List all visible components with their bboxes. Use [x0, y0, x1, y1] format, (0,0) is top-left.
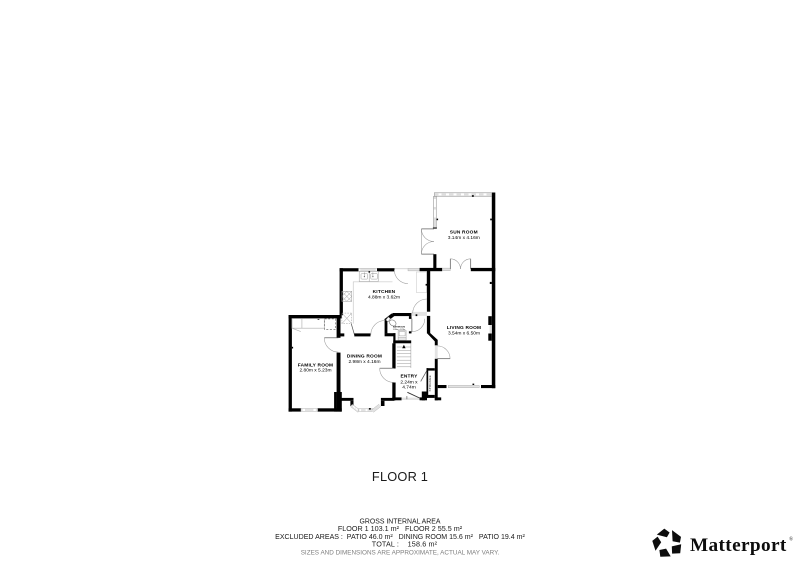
svg-text:BATHROOM: BATHROOM — [393, 325, 405, 328]
svg-text:KITCHEN: KITCHEN — [373, 289, 396, 295]
svg-text:LIVING ROOM: LIVING ROOM — [447, 325, 481, 331]
svg-text:TOTAL : 158.6 m²: TOTAL : 158.6 m² — [372, 539, 438, 548]
svg-text:1.38m x 1.87m: 1.38m x 1.87m — [393, 329, 406, 331]
svg-text:4.88m x 3.62m: 4.88m x 3.62m — [368, 295, 400, 301]
svg-text:DINING ROOM: DINING ROOM — [347, 354, 382, 360]
svg-text:STORAGE: STORAGE — [428, 375, 432, 391]
svg-text:FLOOR 1: FLOOR 1 — [372, 469, 428, 484]
svg-text:3.54m x 6.50m: 3.54m x 6.50m — [448, 330, 480, 336]
svg-text:ENTRY: ENTRY — [400, 373, 418, 379]
svg-text:2.80m x 5.23m: 2.80m x 5.23m — [299, 368, 331, 374]
svg-text:4.74m: 4.74m — [402, 385, 415, 391]
svg-text:3.14m x 4.16m: 3.14m x 4.16m — [448, 235, 480, 241]
svg-text:Matterport: Matterport — [690, 535, 787, 556]
svg-text:FLOOR 1 103.1 m² FLOOR 2 55.: FLOOR 1 103.1 m² FLOOR 2 55.5 m² — [338, 524, 463, 533]
svg-text:2.98m x 4.16m: 2.98m x 4.16m — [348, 359, 380, 365]
svg-text:SIZES AND DIMENSIONS ARE APPRO: SIZES AND DIMENSIONS ARE APPROXIMATE, AC… — [301, 550, 500, 557]
svg-text:®: ® — [789, 536, 793, 543]
svg-text:2.24m x: 2.24m x — [400, 379, 418, 385]
svg-text:FAMILY ROOM: FAMILY ROOM — [298, 362, 334, 368]
svg-text:SUN ROOM: SUN ROOM — [450, 230, 478, 236]
